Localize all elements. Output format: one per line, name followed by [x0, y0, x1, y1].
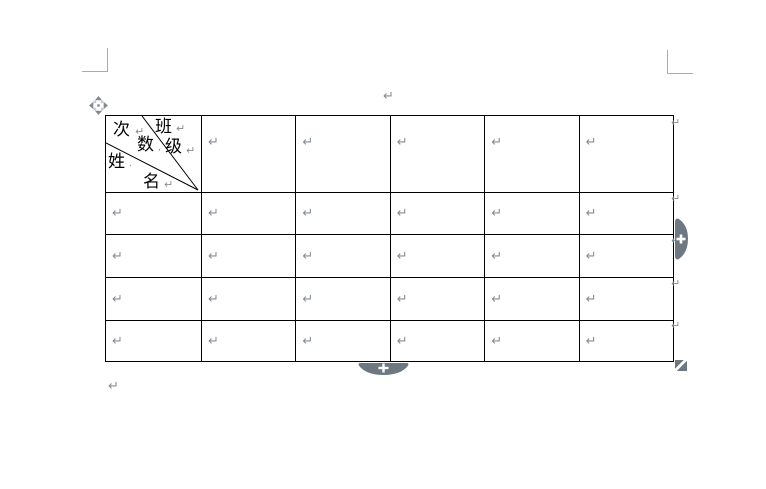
- row-end-mark: ↵: [671, 193, 680, 204]
- table-cell[interactable]: ↵: [390, 234, 484, 277]
- row-end-mark: ↵: [671, 117, 680, 128]
- table-cell[interactable]: ↵: [295, 320, 389, 361]
- header-label-shu: 数: [137, 135, 154, 154]
- cell-end-mark: ↵: [208, 136, 219, 149]
- header-label-ji: 级: [165, 137, 182, 156]
- table-cell[interactable]: ↵: [295, 192, 389, 234]
- cell-end-mark: ↵: [208, 250, 219, 263]
- table-cell[interactable]: ↵: [201, 320, 295, 361]
- cell-end-mark: ↵: [586, 335, 597, 348]
- table-cell[interactable]: ↵: [579, 192, 673, 234]
- paragraph-mark: ↵: [164, 179, 173, 190]
- crop-mark-top-right: [667, 50, 693, 74]
- cell-end-mark: ↵: [208, 335, 219, 348]
- table: 次 ↵ 班 ↵ 数 , 级 ↵ 姓 . 名 ↵ ↵ ↵ ↵ ↵ ↵ ↵ ↵ ↵ …: [105, 115, 674, 362]
- cell-end-mark: ↵: [586, 250, 597, 263]
- cell-end-mark: ↵: [208, 207, 219, 220]
- cell-end-mark: ↵: [302, 335, 313, 348]
- table-cell[interactable]: ↵: [106, 320, 201, 361]
- crop-mark-top-left: [82, 48, 108, 72]
- cell-end-mark: ↵: [491, 335, 502, 348]
- cell-end-mark: ↵: [208, 293, 219, 306]
- table-cell[interactable]: ↵: [201, 277, 295, 320]
- insert-row-handle[interactable]: [358, 362, 409, 375]
- cell-end-mark: ↵: [112, 335, 123, 348]
- table-cell[interactable]: ↵: [295, 116, 389, 192]
- table-cell[interactable]: ↵: [390, 192, 484, 234]
- cell-end-mark: ↵: [302, 136, 313, 149]
- table-cell[interactable]: ↵: [484, 277, 578, 320]
- cell-end-mark: ↵: [112, 293, 123, 306]
- header-label-xing: 姓: [108, 152, 125, 171]
- paragraph-mark: .: [129, 160, 132, 169]
- table-cell[interactable]: ↵: [390, 277, 484, 320]
- table-cell[interactable]: ↵: [106, 234, 201, 277]
- cell-end-mark: ↵: [112, 250, 123, 263]
- table-cell[interactable]: ↵: [579, 234, 673, 277]
- header-label-ming: 名: [143, 172, 160, 191]
- table-cell[interactable]: ↵: [201, 192, 295, 234]
- cell-end-mark: ↵: [302, 250, 313, 263]
- cell-end-mark: ↵: [302, 207, 313, 220]
- table-cell[interactable]: ↵: [484, 116, 578, 192]
- table-move-handle-icon[interactable]: [89, 96, 108, 115]
- cell-end-mark: ↵: [397, 293, 408, 306]
- cell-end-mark: ↵: [397, 250, 408, 263]
- table-cell[interactable]: ↵: [295, 234, 389, 277]
- table-cell[interactable]: ↵: [579, 277, 673, 320]
- table-cell[interactable]: ↵: [106, 277, 201, 320]
- cell-end-mark: ↵: [302, 293, 313, 306]
- header-label-ban: 班: [155, 117, 172, 136]
- word-document-page: { "page": { "background": "#ffffff", "ki…: [0, 0, 766, 489]
- insert-column-handle[interactable]: [674, 218, 689, 260]
- cell-end-mark: ↵: [586, 293, 597, 306]
- cell-end-mark: ↵: [112, 207, 123, 220]
- paragraph-mark-below-table: ↵: [108, 380, 119, 393]
- cell-end-mark: ↵: [586, 207, 597, 220]
- cell-end-mark: ↵: [491, 136, 502, 149]
- paragraph-mark: ,: [158, 144, 161, 153]
- table-cell[interactable]: ↵: [201, 116, 295, 192]
- table-cell[interactable]: ↵: [201, 234, 295, 277]
- cell-end-mark: ↵: [397, 136, 408, 149]
- table-cell[interactable]: ↵: [484, 320, 578, 361]
- paragraph-mark-above-table: ↵: [383, 90, 394, 103]
- table-cell[interactable]: ↵: [390, 320, 484, 361]
- table-cell[interactable]: ↵: [390, 116, 484, 192]
- paragraph-mark: ↵: [176, 123, 185, 134]
- table-cell[interactable]: ↵: [106, 192, 201, 234]
- cell-end-mark: ↵: [491, 250, 502, 263]
- row-end-mark: ↵: [671, 320, 680, 331]
- table-resize-handle[interactable]: [675, 360, 687, 371]
- cell-end-mark: ↵: [397, 335, 408, 348]
- header-label-ci: 次: [113, 120, 130, 139]
- paragraph-mark: ↵: [186, 145, 195, 156]
- table-cell[interactable]: ↵: [295, 277, 389, 320]
- row-end-mark: ↵: [671, 278, 680, 289]
- cell-end-mark: ↵: [491, 207, 502, 220]
- cell-end-mark: ↵: [586, 136, 597, 149]
- table-cell[interactable]: ↵: [484, 192, 578, 234]
- table-cell[interactable]: ↵: [484, 234, 578, 277]
- table-cell[interactable]: ↵: [579, 116, 673, 192]
- cell-end-mark: ↵: [397, 207, 408, 220]
- table-cell[interactable]: ↵: [579, 320, 673, 361]
- cell-end-mark: ↵: [491, 293, 502, 306]
- table-header-cell[interactable]: 次 ↵ 班 ↵ 数 , 级 ↵ 姓 . 名 ↵: [106, 116, 201, 192]
